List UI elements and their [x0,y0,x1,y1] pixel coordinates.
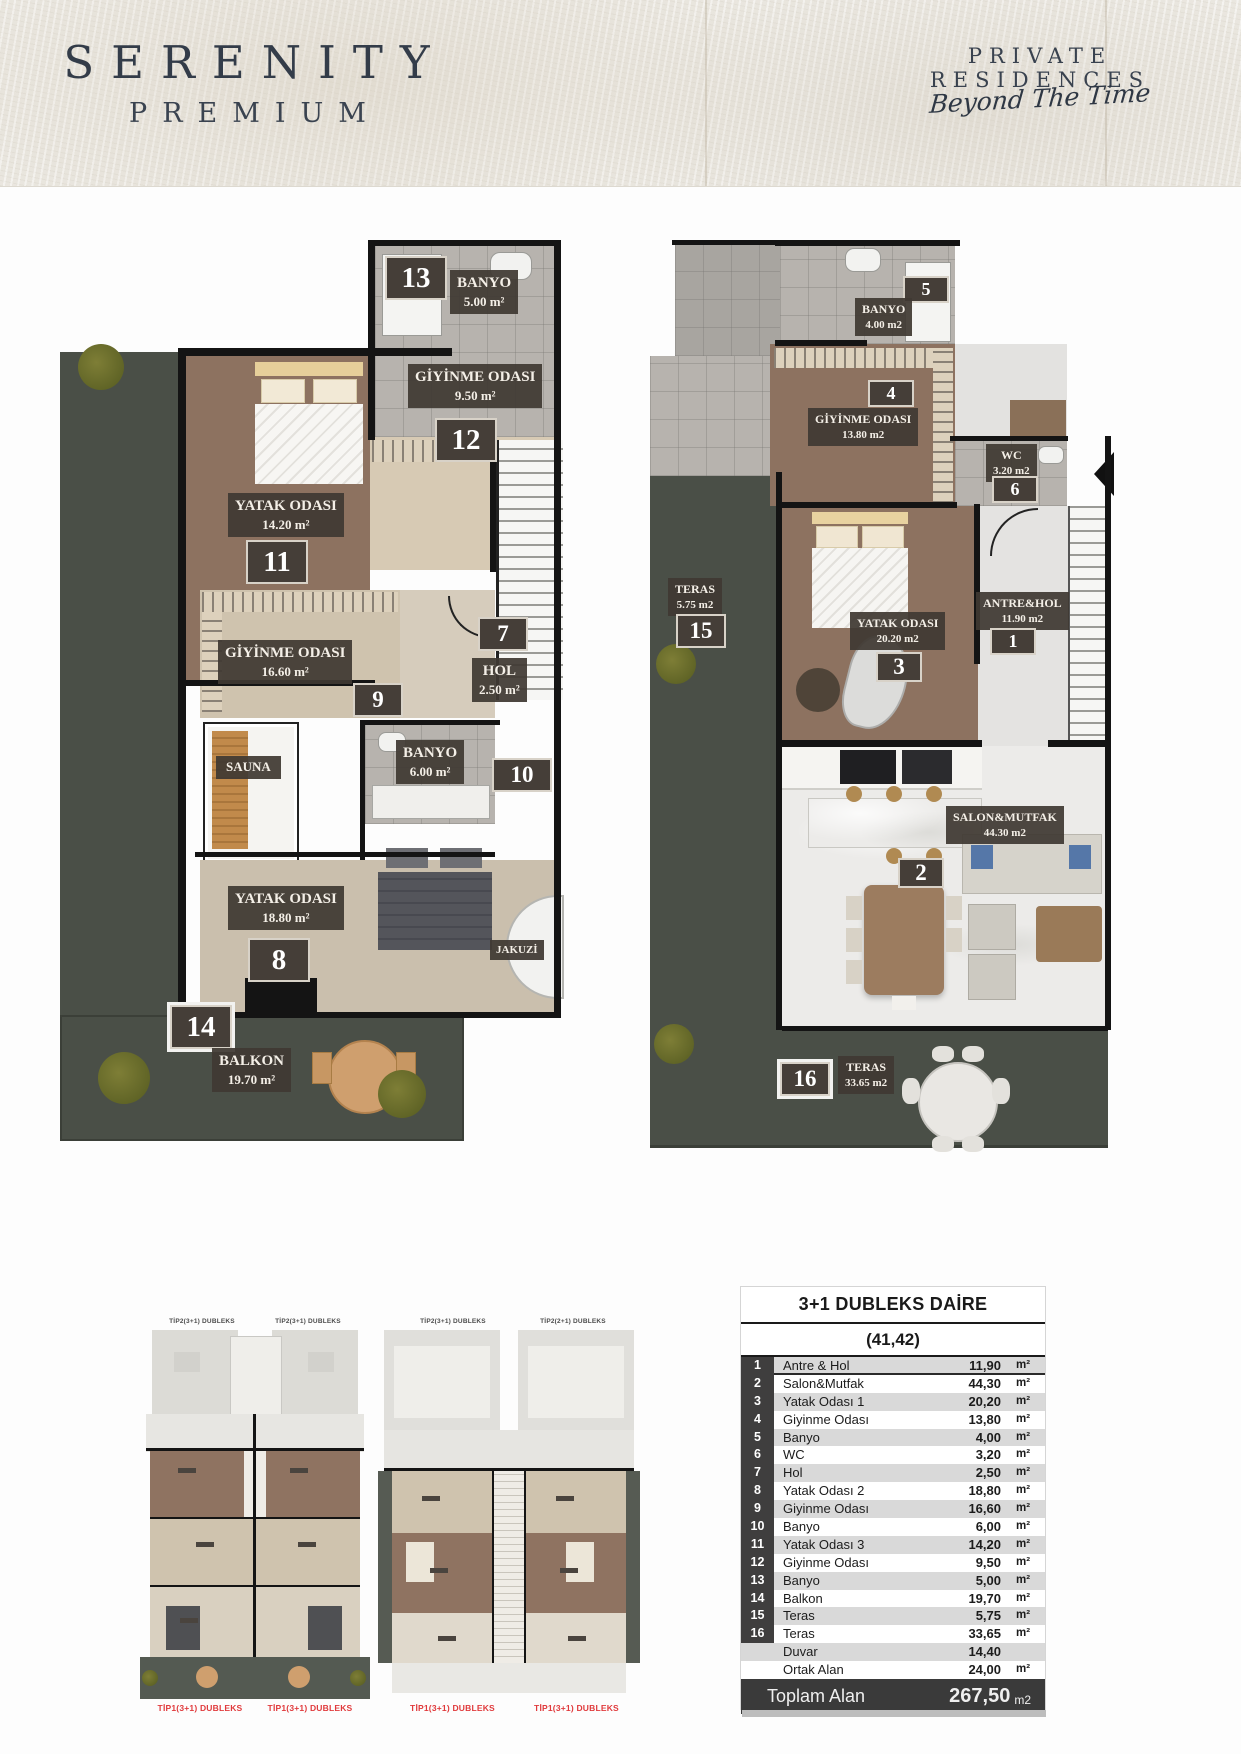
wall [775,340,867,346]
room-label-hol-7: HOL 2.50 m² [472,658,527,702]
staircase [1068,506,1110,746]
wardrobe-strip [933,348,953,503]
row-area-value: 4,00 [935,1429,1001,1447]
row-area-value: 14,20 [935,1536,1001,1554]
row-area-value: 24,00 [935,1661,1001,1679]
mini-wall [524,1471,526,1663]
room-label-giyinme-4: GİYİNME ODASI 13.80 m2 [808,408,918,446]
wall [360,720,365,860]
faded-unit [152,1330,238,1414]
room-badge-15: 15 [676,614,726,648]
table-shadow [742,1710,1046,1717]
wall [195,852,495,857]
room-label-giyinme-12: GİYİNME ODASI 9.50 m² [408,364,542,408]
stool [846,786,862,802]
terrace-chair [932,1046,954,1062]
plant [378,1070,426,1118]
table-rows: 1 Antre & Hol 11,90 m² 2 Salon&Mutfak 44… [741,1357,1045,1679]
key-plan-1: TİP2(3+1) DUBLEKS TİP2(3+1) DUBLEKS TİP1… [140,1318,370,1718]
row-number: 3 [741,1393,774,1411]
row-number: 4 [741,1411,774,1429]
dining-chair [946,896,962,920]
faded-unit [272,1330,358,1414]
room-label-teras-15: TERAS 5.75 m2 [668,578,722,616]
room-badge-3: 3 [876,652,922,682]
cooktop-appliance [840,750,896,784]
row-room-name: WC [775,1446,935,1464]
bed [255,362,363,484]
table-row: 2 Salon&Mutfak 44,30 m² [741,1375,1045,1393]
room-label-yatak-3: YATAK ODASI 20.20 m2 [850,612,945,650]
plant [350,1670,366,1686]
faded-bed [308,1352,334,1372]
row-area-value: 5,75 [935,1607,1001,1625]
pillow [862,526,904,548]
room-badge-9: 9 [353,683,403,717]
row-area-unit: m² [1001,1572,1045,1590]
dining-table [864,885,944,995]
terrace-dining-table [918,1062,998,1142]
table-footer: Toplam Alan 267,50 m2 [741,1679,1045,1714]
row-area-unit: m² [1001,1661,1045,1679]
room-badge-7: 7 [478,617,528,651]
dining-chair [846,928,862,952]
mini-salon-band [392,1663,626,1693]
side-terrace-15 [650,476,776,1030]
key-plan-unit-label: TİP1(3+1) DUBLEKS [400,1703,505,1713]
mini-table [288,1666,310,1688]
mini-bed [406,1542,434,1582]
row-room-name: Antre & Hol [775,1357,935,1375]
row-number: 7 [741,1464,774,1482]
wall [1105,436,1111,1030]
room-label-jakuzi: JAKUZİ [490,940,544,960]
wall [375,240,560,246]
bed-blanket [255,404,363,484]
wall [360,720,500,725]
wall [775,240,960,246]
pillow [386,848,428,868]
row-number: 9 [741,1500,774,1518]
room-label-antre-1: ANTRE&HOL 11.90 m2 [976,592,1069,630]
dining-chair [946,928,962,952]
row-room-name: Teras [775,1607,935,1625]
row-room-name: Yatak Odası 3 [775,1536,935,1554]
page-header: SERENITY PREMIUM PRIVATE RESIDENCES Beyo… [0,0,1241,187]
row-number: 13 [741,1572,774,1590]
plant [656,644,696,684]
bed-blanket [378,872,492,950]
row-area-unit [1001,1643,1045,1661]
area-table: 3+1 DUBLEKS DAİRE (41,42) 1 Antre & Hol … [740,1286,1046,1710]
mini-room-label [422,1496,440,1501]
brand-subtitle: PREMIUM [40,98,470,129]
room-label-yatak-11: YATAK ODASI 14.20 m² [228,493,344,537]
row-area-unit: m² [1001,1464,1045,1482]
armchair [968,954,1016,1000]
row-number: 6 [741,1446,774,1464]
room-badge-12: 12 [435,418,497,462]
room-label-teras-16: TERAS 33.65 m2 [838,1056,894,1094]
brochure-page: SERENITY PREMIUM PRIVATE RESIDENCES Beyo… [0,0,1241,1754]
row-area-unit: m² [1001,1607,1045,1625]
terrace-chair [962,1046,984,1062]
key-plan-type-label: TİP2(3+1) DUBLEKS [398,1318,508,1325]
mini-room-label [438,1636,456,1641]
room-label-yatak-8: YATAK ODASI 18.80 m² [228,886,344,930]
row-area-unit: m² [1001,1590,1045,1608]
row-area-unit: m² [1001,1357,1045,1375]
room-label-sauna: SAUNA [216,756,281,779]
table-subtitle: (41,42) [741,1324,1045,1357]
toilet-fixture [1038,446,1064,464]
row-number: 12 [741,1554,774,1572]
mini-dressing [526,1471,626,1533]
row-number: 10 [741,1518,774,1536]
sauna-bench [212,731,248,849]
wall-block [245,978,317,1016]
room-badge-10: 10 [492,758,552,792]
room-badge-2: 2 [898,858,944,888]
table-row: Duvar 14,40 [741,1643,1045,1661]
key-plan-unit-label: TİP1(3+1) DUBLEKS [524,1703,629,1713]
common-area-tile [650,356,776,476]
mini-bed [166,1606,200,1650]
row-area-unit: m² [1001,1482,1045,1500]
faded-interior [394,1346,490,1418]
plant [98,1052,150,1104]
cabinet [1010,400,1066,438]
stool [926,786,942,802]
key-plan-type-label: TİP2(2+1) DUBLEKS [518,1318,628,1325]
pillow [816,526,858,548]
mini-room-label [290,1468,308,1473]
faded-band [384,1430,634,1468]
row-room-name: Banyo [775,1518,935,1536]
room-badge-16: 16 [780,1062,830,1096]
wardrobe-strip [774,348,934,368]
terrace-chair [902,1078,920,1104]
row-number: 2 [741,1375,774,1393]
row-area-unit: m² [1001,1625,1045,1643]
table-row: 13 Banyo 5,00 m² [741,1572,1045,1590]
terrace-chair [992,1078,1010,1104]
dining-chair [846,896,862,920]
row-room-name: Giyinme Odası [775,1411,935,1429]
wall [782,502,957,508]
bed [378,846,492,950]
row-area-value: 14,40 [935,1643,1001,1661]
table-row: 3 Yatak Odası 1 20,20 m² [741,1393,1045,1411]
row-room-name: Giyinme Odası [775,1500,935,1518]
wall [672,240,782,245]
table-row: 8 Yatak Odası 2 18,80 m² [741,1482,1045,1500]
row-number: 14 [741,1590,774,1608]
mini-bed [308,1606,342,1650]
mini-room-label [556,1496,574,1501]
table-row: 7 Hol 2,50 m² [741,1464,1045,1482]
room-badge-4: 4 [868,380,914,407]
wall [368,240,375,440]
row-area-value: 33,65 [935,1625,1001,1643]
row-number [741,1643,774,1661]
row-room-name: Balkon [775,1590,935,1608]
vanity-counter [372,785,490,819]
row-area-unit: m² [1001,1446,1045,1464]
dining-chair [892,996,916,1010]
oven-appliance [902,750,952,784]
table-row: 12 Giyinme Odası 9,50 m² [741,1554,1045,1572]
row-area-value: 18,80 [935,1482,1001,1500]
row-room-name: Banyo [775,1429,935,1447]
room-label-balkon-14: BALKON 19.70 m² [212,1048,291,1092]
mini-room-label [178,1468,196,1473]
sauna-room [205,724,297,862]
row-area-value: 44,30 [935,1375,1001,1393]
bed-headboard [812,512,908,524]
table-row: 11 Yatak Odası 3 14,20 m² [741,1536,1045,1554]
row-room-name: Giyinme Odası [775,1554,935,1572]
brand-title: SERENITY [40,36,470,89]
mini-table [196,1666,218,1688]
balcony-chair [312,1052,332,1084]
pillow [440,848,482,868]
terrace-chair [932,1136,954,1152]
lower-floor-plan: 5 BANYO 4.00 m2 4 GİYİNME ODASI 13.80 m2… [650,240,1120,1145]
table-row: Ortak Alan 24,00 m² [741,1661,1045,1679]
row-area-value: 9,50 [935,1554,1001,1572]
row-area-value: 2,50 [935,1464,1001,1482]
row-area-unit: m² [1001,1429,1045,1447]
row-area-value: 19,70 [935,1590,1001,1608]
row-area-unit: m² [1001,1393,1045,1411]
room-badge-6: 6 [992,476,1038,503]
room-badge-8: 8 [248,938,310,982]
plant [78,344,124,390]
table-row: 5 Banyo 4,00 m² [741,1429,1045,1447]
table-row: 4 Giyinme Odası 13,80 m² [741,1411,1045,1429]
room-label-banyo-10: BANYO 6.00 m² [396,740,464,784]
sofa-pillow [971,845,993,869]
faded-interior [528,1346,624,1418]
row-area-unit: m² [1001,1518,1045,1536]
key-plan-unit-label: TİP1(3+1) DUBLEKS [260,1703,360,1713]
row-number: 5 [741,1429,774,1447]
wall [1048,740,1108,747]
round-rug [796,668,840,712]
room-label-giyinme-9: GİYİNME ODASI 16.60 m² [218,640,352,684]
table-row: 1 Antre & Hol 11,90 m² [741,1357,1045,1375]
row-room-name: Yatak Odası 1 [775,1393,935,1411]
mini-terrace-col [626,1471,640,1663]
sofa-pillow [1069,845,1091,869]
row-area-unit: m² [1001,1500,1045,1518]
room-label-salon-2: SALON&MUTFAK 44.30 m2 [946,806,1064,844]
pillow [313,379,357,403]
row-number: 1 [741,1357,774,1375]
table-row: 6 WC 3,20 m² [741,1446,1045,1464]
table-row: 14 Balkon 19,70 m² [741,1590,1045,1608]
row-area-value: 6,00 [935,1518,1001,1536]
row-area-value: 20,20 [935,1393,1001,1411]
row-area-value: 5,00 [935,1572,1001,1590]
coffee-table [1036,906,1102,962]
row-area-value: 3,20 [935,1446,1001,1464]
room-label-banyo-13: BANYO 5.00 m² [450,270,518,314]
direction-arrow-icon [1094,452,1114,496]
dining-chair [846,960,862,984]
row-room-name: Yatak Odası 2 [775,1482,935,1500]
room-badge-13: 13 [385,256,447,300]
armchair [968,904,1016,950]
wall [950,436,1068,441]
mini-room-label [298,1542,316,1547]
key-plan-2: TİP2(3+1) DUBLEKS TİP2(2+1) DUBLEKS TİP1… [378,1318,640,1718]
row-number: 11 [741,1536,774,1554]
table-row: 15 Teras 5,75 m² [741,1607,1045,1625]
mini-bedroom [150,1451,244,1517]
mini-bedroom [266,1451,360,1517]
wall [554,240,561,1018]
key-plan-unit-label: TİP1(3+1) DUBLEKS [150,1703,250,1713]
row-area-unit: m² [1001,1411,1045,1429]
row-area-unit: m² [1001,1554,1045,1572]
wall [776,472,782,1030]
key-plan-type-label: TİP2(3+1) DUBLEKS [152,1318,252,1325]
terrace-chair [962,1136,984,1152]
sink-fixture [845,248,881,272]
key-plan-type-label: TİP2(3+1) DUBLEKS [258,1318,358,1325]
total-value: 267,50 [949,1685,1010,1708]
room-badge-14: 14 [170,1005,232,1049]
row-area-unit: m² [1001,1536,1045,1554]
mini-dressing [392,1471,492,1533]
mini-room-label [430,1568,448,1573]
room-label-banyo-5: BANYO 4.00 m2 [855,298,912,336]
wall [178,348,452,356]
wardrobe-strip [202,592,398,612]
row-room-name: Duvar [775,1643,935,1661]
row-room-name: Banyo [775,1572,935,1590]
row-room-name: Hol [775,1464,935,1482]
row-room-name: Teras [775,1625,935,1643]
mini-wall [253,1414,256,1659]
row-area-unit: m² [1001,1375,1045,1393]
row-room-name: Ortak Alan [775,1661,935,1679]
mini-room-label [180,1618,198,1623]
mini-terrace-col [378,1471,392,1663]
mini-room-label [568,1636,586,1641]
row-number: 8 [741,1482,774,1500]
wall [974,504,980,664]
mini-terrace [140,1657,370,1699]
room-badge-11: 11 [246,540,308,584]
pillow [261,379,305,403]
mini-stair-core [492,1471,526,1663]
bed [812,512,908,628]
row-area-value: 16,60 [935,1500,1001,1518]
texture-seam [705,0,707,186]
bed-headboard [255,362,363,376]
table-row: 10 Banyo 6,00 m² [741,1518,1045,1536]
mini-wall [492,1471,494,1663]
common-area-tile [675,244,790,356]
wall [782,1026,1108,1031]
mini-bed [566,1542,594,1582]
total-unit: m2 [1014,1693,1031,1707]
mini-room-label [560,1568,578,1573]
room-badge-1: 1 [990,628,1036,655]
stool [886,786,902,802]
row-area-value: 13,80 [935,1411,1001,1429]
faded-bed [174,1352,200,1372]
row-number: 16 [741,1625,774,1643]
table-title: 3+1 DUBLEKS DAİRE [741,1287,1045,1324]
table-row: 16 Teras 33,65 m² [741,1625,1045,1643]
plant [654,1024,694,1064]
wall [185,1012,561,1018]
row-number: 15 [741,1607,774,1625]
row-room-name: Salon&Mutfak [775,1375,935,1393]
total-label: Toplam Alan [741,1686,949,1707]
mini-room-label [196,1542,214,1547]
upper-floor-plan: 13 BANYO 5.00 m² GİYİNME ODASI 9.50 m² 1… [60,240,562,1140]
row-number [741,1661,774,1679]
table-row: 9 Giyinme Odası 16,60 m² [741,1500,1045,1518]
plant [142,1670,158,1686]
wall [782,740,982,747]
row-area-value: 11,90 [935,1357,1001,1375]
